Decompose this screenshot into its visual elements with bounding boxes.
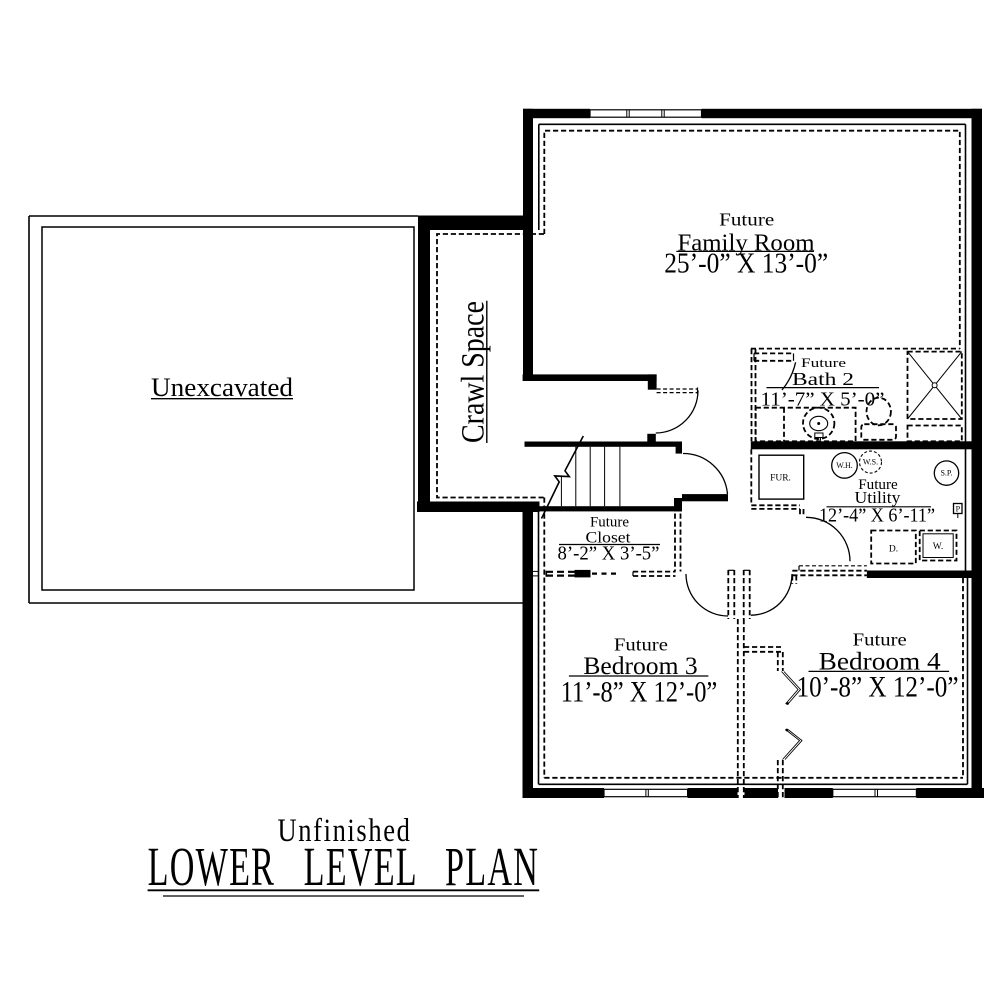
svg-text:8’-2” X 3’-5”: 8’-2” X 3’-5” — [558, 543, 660, 565]
svg-text:Future: Future — [614, 634, 668, 654]
svg-text:25’-0” X 13’-0”: 25’-0” X 13’-0” — [664, 247, 828, 279]
svg-text:Future: Future — [801, 356, 847, 370]
svg-text:Unexcavated: Unexcavated — [151, 373, 293, 402]
svg-text:10’-8” X 12’-0”: 10’-8” X 12’-0” — [797, 671, 959, 704]
svg-text:S.P.: S.P. — [940, 469, 952, 478]
svg-text:W.H.: W.H. — [836, 461, 853, 470]
svg-text:Future: Future — [853, 630, 907, 650]
svg-text:W.S.: W.S. — [863, 458, 878, 467]
svg-text:Bath 2: Bath 2 — [792, 369, 854, 389]
svg-text:FUR.: FUR. — [770, 474, 791, 484]
svg-text:Future: Future — [719, 209, 774, 229]
svg-text:12’-4” X 6’-11”: 12’-4” X 6’-11” — [819, 505, 935, 527]
svg-text:W.: W. — [933, 542, 943, 552]
svg-text:11’-8” X 12’-0”: 11’-8” X 12’-0” — [561, 676, 718, 709]
svg-text:Future: Future — [590, 515, 629, 531]
svg-text:LOWER LEVEL PLAN: LOWER LEVEL PLAN — [148, 836, 540, 897]
svg-text:D.: D. — [889, 545, 898, 555]
svg-text:P: P — [956, 505, 961, 514]
